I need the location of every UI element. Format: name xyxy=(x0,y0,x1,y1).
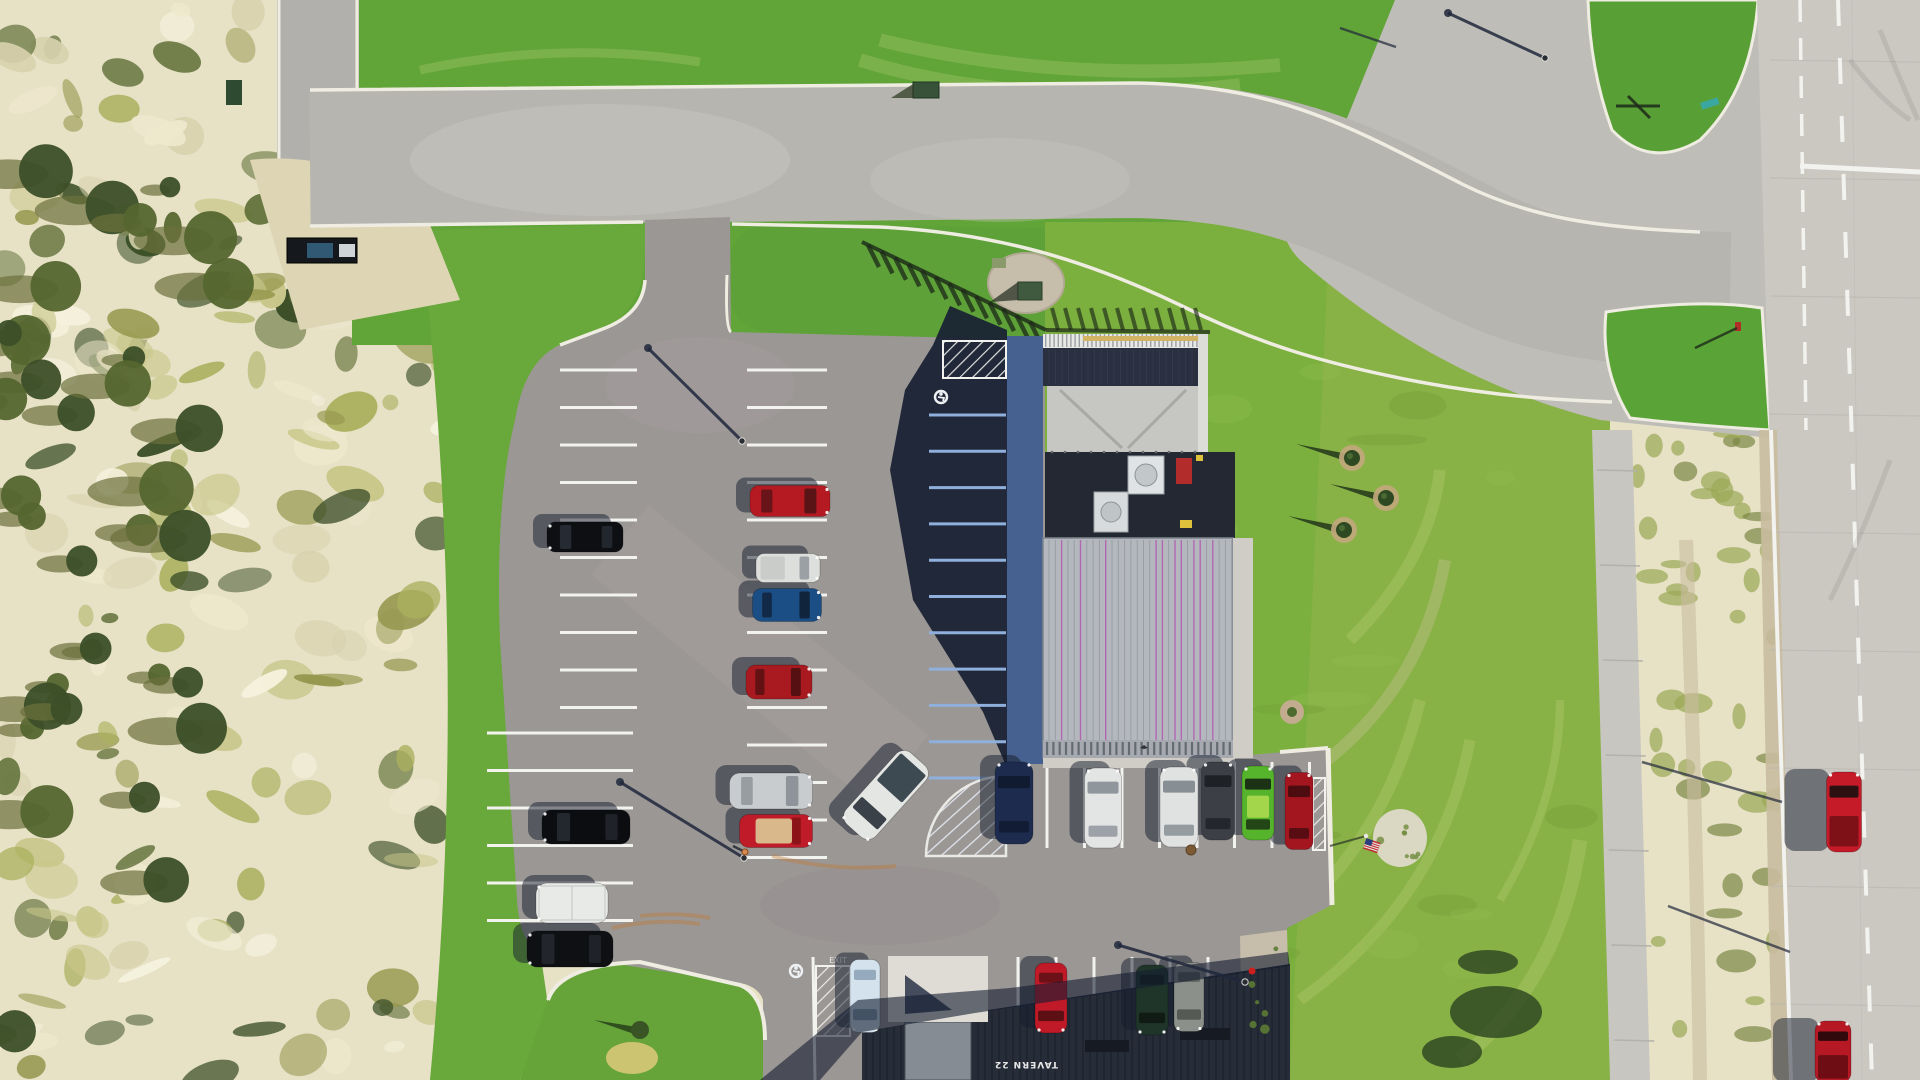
roof-panel-slot xyxy=(1065,742,1067,755)
shoulder-scrub xyxy=(1672,1020,1687,1038)
rear-glass xyxy=(999,821,1029,832)
tree-canopy xyxy=(123,203,157,237)
hvac-fan-b xyxy=(1101,502,1121,522)
shoulder-scrub xyxy=(1745,996,1764,1005)
utility-box-west xyxy=(226,80,242,105)
windshield xyxy=(560,525,571,549)
headlight xyxy=(543,838,546,841)
railing-picket xyxy=(1079,334,1080,347)
grass-mottle xyxy=(1331,655,1399,667)
sidewalk-joint xyxy=(1614,1040,1654,1041)
headlight xyxy=(1829,773,1832,776)
yellow-roof-marker xyxy=(1196,455,1203,461)
windshield xyxy=(557,813,570,841)
sidewalk-joint xyxy=(1597,470,1637,471)
blue-sedan-mid-row xyxy=(753,589,822,622)
headlight xyxy=(1287,774,1290,777)
rear-glass xyxy=(1206,818,1231,829)
junction-grass-island-south xyxy=(1605,304,1770,430)
headlight xyxy=(1192,768,1195,771)
roof-panel-slot xyxy=(1096,742,1098,755)
railing-picket xyxy=(1058,334,1059,347)
handicap-dot xyxy=(939,392,943,396)
gravel-plant xyxy=(1273,946,1278,951)
sidewalk-joint xyxy=(1609,850,1649,851)
deck-floor-shaded xyxy=(1043,348,1207,386)
headlight xyxy=(1845,1022,1848,1025)
rear-glass xyxy=(762,593,772,618)
roof-panel-slot xyxy=(1071,742,1073,755)
headlight xyxy=(997,763,1000,766)
roof-panel-slot xyxy=(1052,742,1054,755)
tree-canopy xyxy=(105,360,151,406)
shoulder-scrub xyxy=(1734,1026,1773,1042)
trailer-tarp xyxy=(307,243,333,258)
tree-canopy xyxy=(21,359,61,399)
roof-panel-slot xyxy=(1046,742,1048,755)
windshield xyxy=(1139,1013,1165,1024)
headlight xyxy=(1244,767,1247,770)
red-car-on-highway-south xyxy=(1815,1021,1851,1080)
white-pickup-mid-row xyxy=(756,554,820,583)
road-sun-patch xyxy=(410,104,790,216)
gravel-plant xyxy=(1249,1021,1256,1028)
windshield xyxy=(799,592,809,619)
bed-plant xyxy=(1403,824,1408,829)
rear-glass xyxy=(854,970,876,980)
rear-glass xyxy=(605,814,617,840)
sidewalk-joint xyxy=(1600,565,1640,566)
lot-light-southeast-head-shadow xyxy=(1114,941,1122,949)
windshield xyxy=(1163,781,1195,793)
headlight xyxy=(808,817,811,820)
red-rooftop-box xyxy=(1176,458,1192,484)
headlight xyxy=(1037,1028,1040,1031)
tree-canopy xyxy=(160,177,181,198)
shoulder-scrub xyxy=(1650,728,1663,753)
headlight xyxy=(825,511,828,514)
roof-panel-slot xyxy=(1159,742,1161,755)
hvac-fan-a xyxy=(1135,464,1157,486)
shoulder-scrub xyxy=(1744,568,1760,592)
patio-post xyxy=(1168,451,1171,454)
windshield xyxy=(1245,779,1271,790)
road-sun-patch-2 xyxy=(870,138,1130,222)
utility-box-small xyxy=(992,258,1006,268)
headlight xyxy=(808,842,811,845)
scrub-blob xyxy=(367,968,419,1007)
open-interior xyxy=(756,819,793,844)
grass-mottle xyxy=(1300,364,1341,381)
roof-panel-slot xyxy=(1134,742,1136,755)
windshield xyxy=(800,557,810,580)
shrub xyxy=(1287,707,1297,717)
tree-canopy xyxy=(184,211,237,264)
rear-glass xyxy=(1289,828,1309,839)
headlight xyxy=(537,885,540,888)
no-park-hatch-shaded xyxy=(943,341,1006,378)
headlight xyxy=(817,591,820,594)
tree-canopy xyxy=(172,667,203,698)
roof-panel-slot xyxy=(1115,742,1117,755)
roof-panel-slot xyxy=(1147,742,1149,755)
gravel-plant xyxy=(1255,1000,1259,1004)
tree-canopy xyxy=(80,633,112,665)
grass-mottle xyxy=(1486,470,1516,485)
shoulder-scrub xyxy=(1722,873,1742,897)
roof-panel-slot xyxy=(1216,742,1218,755)
rear-glass xyxy=(761,490,772,513)
roof-panel-slot xyxy=(1166,742,1168,755)
railing-picket xyxy=(1053,334,1054,347)
windshield xyxy=(542,934,555,964)
headlight xyxy=(807,667,810,670)
trailer-cargo xyxy=(339,244,355,257)
truck-bed xyxy=(1818,1055,1848,1079)
roof-panel-slot xyxy=(1178,742,1180,755)
windshield xyxy=(1830,786,1859,798)
white-box-van xyxy=(536,883,608,923)
windshield xyxy=(1205,775,1232,787)
roof-panel-slot xyxy=(1229,742,1231,755)
headlight xyxy=(1061,1028,1064,1031)
navy-car-front-row xyxy=(995,762,1033,844)
rear-glass xyxy=(1164,825,1194,836)
green-car-front-row xyxy=(1242,766,1274,840)
shoulder-scrub xyxy=(1639,517,1657,540)
headlight xyxy=(1162,1030,1165,1033)
shadow-shape xyxy=(1785,769,1830,851)
body-stripe xyxy=(1247,796,1269,818)
windshield xyxy=(1088,782,1119,794)
gravel-plant xyxy=(1260,1024,1269,1033)
curb-hatch-east xyxy=(1313,778,1325,850)
patio-post xyxy=(1116,451,1119,454)
tree-canopy xyxy=(66,545,97,576)
manhole-cover xyxy=(1186,845,1196,855)
dark-gray-car-front-row xyxy=(1202,762,1235,840)
silver-sedan-mid-row xyxy=(730,773,813,809)
deck-rail-yellow-top xyxy=(1083,336,1207,341)
shoulder-scrub xyxy=(1691,488,1719,499)
black-sedan-west-row xyxy=(542,810,630,844)
street-light-junction xyxy=(1542,55,1548,61)
patio-post xyxy=(1090,451,1093,454)
handicap-dot xyxy=(794,966,798,970)
patio-post xyxy=(1194,451,1197,454)
fire-hydrant xyxy=(1249,968,1256,975)
lot-light-south-head-shadow xyxy=(616,778,624,786)
shoulder-scrub xyxy=(1636,569,1668,584)
sidewalk-east-of-building xyxy=(1233,538,1253,758)
red-car-front-row-east xyxy=(1285,773,1313,850)
roof-panel-slot xyxy=(1128,742,1130,755)
shoulder-scrub xyxy=(1706,908,1742,918)
windshield xyxy=(804,489,816,514)
black-suv-west-row xyxy=(547,522,623,552)
headlight xyxy=(1198,1027,1201,1030)
deck-railing-east xyxy=(1198,334,1208,454)
tree-canopy xyxy=(143,857,189,903)
headlight xyxy=(807,693,810,696)
headlight xyxy=(1856,773,1859,776)
grass-mottle xyxy=(1545,805,1597,829)
lot-light-north xyxy=(739,438,745,444)
headlight xyxy=(1204,763,1207,766)
tree-canopy xyxy=(139,461,194,516)
rail-shadow-line xyxy=(1046,330,1210,332)
street-light-junction-head-shadow xyxy=(1444,9,1452,17)
main-metal-roof xyxy=(1043,538,1233,758)
headlight xyxy=(817,616,820,619)
roof-panel-slot xyxy=(1153,742,1155,755)
railing-picket xyxy=(1049,334,1050,347)
rear-glass xyxy=(755,669,764,695)
shoulder-scrub xyxy=(1645,434,1662,458)
dead-grass-patch xyxy=(606,1042,658,1074)
roof-panel-slot xyxy=(1084,742,1086,755)
roof-panel-slot xyxy=(1109,742,1111,755)
white-car-front-row xyxy=(1085,768,1122,848)
tree-canopy xyxy=(19,144,73,198)
rooftop-structure xyxy=(905,1022,971,1080)
evergreen-highlight xyxy=(1339,525,1345,531)
roof-panel-slot xyxy=(1210,742,1212,755)
aerial-photo: EXIT TAVERN 22 xyxy=(0,0,1920,1080)
headlight xyxy=(1027,763,1030,766)
headlight xyxy=(548,524,551,527)
railing-picket xyxy=(1070,334,1071,347)
gravel-plant xyxy=(1248,981,1255,988)
roof-panel-slot xyxy=(1204,742,1206,755)
shoulder-scrub xyxy=(1715,490,1743,506)
tree-canopy xyxy=(57,394,94,431)
sidewalk-joint xyxy=(1603,660,1643,661)
headlight xyxy=(1116,769,1119,772)
windshield xyxy=(786,776,798,806)
patio-post xyxy=(1103,451,1106,454)
headlight xyxy=(1087,769,1090,772)
patio-post xyxy=(1064,451,1067,454)
roof-panel-slot xyxy=(1222,742,1224,755)
roof-panel-slot xyxy=(1172,742,1174,755)
black-car-west-row xyxy=(527,931,613,967)
shoulder-scrub xyxy=(1707,823,1742,836)
windshield xyxy=(1288,786,1310,798)
roof-panel-slot xyxy=(1197,742,1199,755)
roof-panel-slot xyxy=(1103,742,1105,755)
asphalt-wear-patch xyxy=(605,337,795,433)
sidewalk-west-shaded xyxy=(1007,336,1043,764)
patio-post xyxy=(1181,451,1184,454)
red-pickup-on-highway-shadow xyxy=(1785,769,1830,851)
headlight xyxy=(1176,1027,1179,1030)
bed-plant xyxy=(1414,855,1419,860)
rear-glass xyxy=(1089,826,1118,837)
utility-cabinet-island xyxy=(1018,282,1042,300)
tree-canopy xyxy=(20,785,73,838)
grass-mottle xyxy=(1450,908,1492,920)
tree-canopy xyxy=(176,703,227,754)
headlight xyxy=(1268,767,1271,770)
windshield xyxy=(1818,1032,1848,1041)
headlight xyxy=(815,556,818,559)
railing-picket xyxy=(1066,334,1067,347)
tree-canopy xyxy=(30,261,81,312)
shoulder-scrub xyxy=(1671,441,1684,456)
truck-bed xyxy=(760,557,784,580)
asphalt-dark-patch xyxy=(760,865,1000,945)
shoulder-scrub xyxy=(1674,461,1698,481)
headlight xyxy=(548,546,551,549)
grass-mottle xyxy=(1347,434,1427,445)
headlight xyxy=(808,775,811,778)
sidewalk-joint xyxy=(1611,945,1651,946)
railing-picket xyxy=(1045,334,1046,347)
headlight xyxy=(1162,768,1165,771)
utility-box-north xyxy=(913,82,939,98)
flagpole xyxy=(1364,834,1368,838)
red-car-on-highway-south-shadow xyxy=(1773,1018,1819,1080)
tavern-sign: TAVERN 22 xyxy=(994,1059,1058,1069)
rear-glass xyxy=(589,935,601,963)
roof-panel-slot xyxy=(1059,742,1061,755)
shoulder-scrub xyxy=(1732,703,1745,729)
roof-panel-slot xyxy=(1122,742,1124,755)
shadow-shape xyxy=(1773,1018,1819,1080)
windshield xyxy=(998,776,1030,788)
patio-post xyxy=(1155,451,1158,454)
windshield xyxy=(1177,1009,1201,1019)
shoulder-scrub xyxy=(1717,547,1751,563)
rear-glass xyxy=(741,777,753,805)
headlight xyxy=(1817,1022,1820,1025)
railing-picket xyxy=(1062,334,1063,347)
headlight xyxy=(528,933,531,936)
grass-mottle xyxy=(1389,391,1446,419)
patio-post xyxy=(1129,451,1132,454)
headlight xyxy=(1138,1030,1141,1033)
yellow-roof-guard xyxy=(1180,520,1192,528)
windshield xyxy=(1038,1011,1064,1022)
grass-mottle xyxy=(1290,692,1371,707)
rear-glass xyxy=(602,526,613,548)
grass-mottle xyxy=(1364,930,1418,960)
roof-panel-slot xyxy=(1185,742,1187,755)
evergreen-highlight xyxy=(1381,493,1387,499)
tree-shadow-blob xyxy=(1458,950,1518,974)
tree-canopy xyxy=(129,782,160,813)
windshield xyxy=(791,668,801,696)
red-sedan-2-mid-row xyxy=(746,665,812,699)
roof-panel-slot xyxy=(1078,742,1080,755)
red-sedan-mid-row xyxy=(750,486,830,517)
shoulder-scrub xyxy=(1716,949,1756,972)
evergreen-highlight xyxy=(1347,453,1353,459)
person xyxy=(742,849,748,855)
lot-light-southeast xyxy=(1242,979,1248,985)
patio-post xyxy=(1051,451,1054,454)
bed-plant xyxy=(1402,830,1407,835)
red-convertible xyxy=(740,815,813,848)
roof-panel-slot xyxy=(1191,742,1193,755)
white-suv-front-row xyxy=(1160,767,1198,847)
roof-panel-slot xyxy=(1090,742,1092,755)
tree-canopy xyxy=(203,258,254,309)
windshield xyxy=(792,818,801,845)
headlight xyxy=(537,917,540,920)
patio-post xyxy=(1077,451,1080,454)
aerial-photo-stage: EXIT TAVERN 22 xyxy=(0,0,1920,1080)
lot-light-south xyxy=(741,855,747,861)
headlight xyxy=(1307,774,1310,777)
sidewalk-joint xyxy=(1606,755,1646,756)
lot-light-north-head-shadow xyxy=(644,344,652,352)
red-pickup-on-highway xyxy=(1827,772,1862,852)
tree-canopy xyxy=(1,475,41,515)
shoulder-scrub xyxy=(1651,936,1666,947)
roof-vent-a xyxy=(1085,1040,1129,1052)
headlight xyxy=(1229,763,1232,766)
bed-plant xyxy=(1405,854,1409,858)
mound-tree xyxy=(631,1021,649,1039)
headlight xyxy=(815,577,818,580)
tree-canopy xyxy=(51,693,83,725)
tree-shadow-blob xyxy=(1422,1036,1482,1068)
tree-canopy xyxy=(176,405,223,452)
tree-shadow-blob xyxy=(1450,986,1542,1038)
truck-bed xyxy=(1830,816,1859,846)
rear-glass xyxy=(1246,819,1270,829)
headlight xyxy=(825,488,828,491)
gravel-plant xyxy=(1262,1010,1269,1017)
shoulder-scrub xyxy=(1730,610,1746,624)
tree-canopy xyxy=(159,510,211,562)
railing-picket xyxy=(1074,334,1075,347)
patio-post xyxy=(1142,451,1145,454)
headlight xyxy=(543,812,546,815)
headlight xyxy=(808,803,811,806)
rear-glass xyxy=(1039,973,1063,983)
headlight xyxy=(528,961,531,964)
